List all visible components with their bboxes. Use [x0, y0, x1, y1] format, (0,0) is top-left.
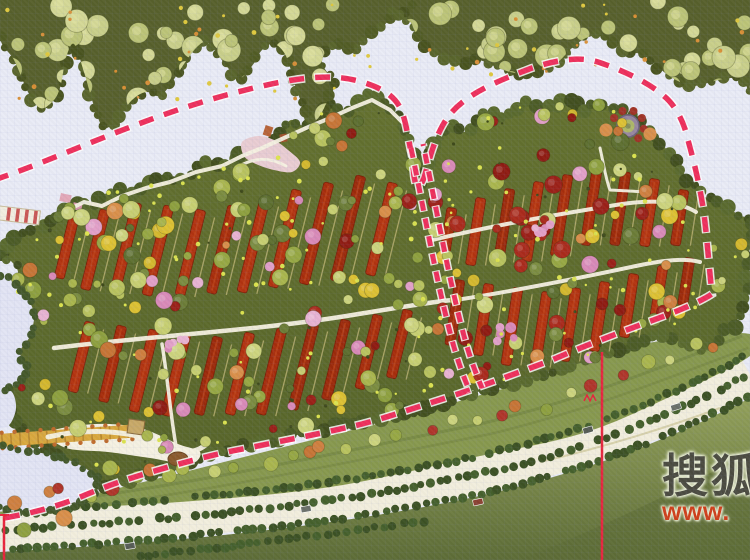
car: [301, 505, 312, 513]
site-plan-canvas: [0, 0, 750, 560]
site-plan-image: 搜狐 www.: [0, 0, 750, 560]
car: [125, 542, 136, 549]
